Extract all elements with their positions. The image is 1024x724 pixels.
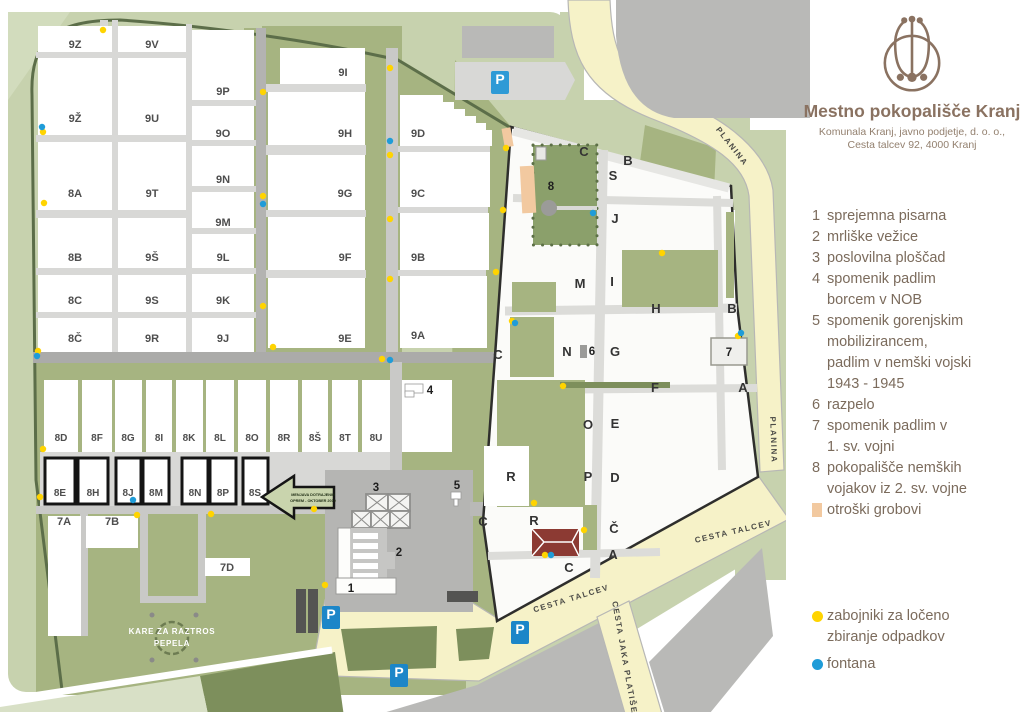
waste-container-dot [500,207,506,213]
fountain-dot [387,138,393,144]
brand-subtitle: Komunala Kranj, javno podjetje, d. o. o.… [806,126,1018,152]
waste-container-dot [208,511,214,517]
waste-container-dot [581,527,587,533]
waste-container-dot [260,193,266,199]
fountain-dot [590,210,596,216]
map-label-oH: H [651,301,660,316]
map-label-z9D: 9D [411,128,425,140]
map-label-z8B: 8B [68,252,82,264]
map-label-z9Sh: 9Š [145,251,158,264]
waste-container-dot [387,276,393,282]
brand-title: Mestno pokopališče Kranj [796,101,1024,122]
map-label-z9N: 9N [216,174,230,186]
brand-subtitle-line2: Cesta talcev 92, 4000 Kranj [806,139,1018,152]
map-label-stPlanina2: PLANINA [768,416,779,463]
map-label-c8G: 8G [121,433,135,444]
map-label-c8I: 8I [155,433,164,444]
map-label-z9B: 9B [411,252,425,264]
map-label-c8Sh: 8Š [309,431,322,444]
waste-container-dot [270,344,276,350]
waste-container-dot [542,552,548,558]
map-label-p1: P [495,71,504,87]
map-label-z7D: 7D [220,562,234,574]
map-label-c8L: 8L [214,433,226,444]
map-label-z9S: 9S [145,295,158,307]
waste-container-dot [134,512,140,518]
waste-container-dot [260,303,266,309]
map-label-c8U: 8U [370,433,383,444]
map-label-z9Zh: 9Ž [69,112,82,125]
waste-container-dot [560,383,566,389]
waste-dot-icon [812,611,823,622]
waste-container-dot [493,269,499,275]
map-label-p2: P [326,606,335,622]
map-label-p3: P [515,621,524,637]
fountain-dot [738,330,744,336]
map-label-z8Ch: 8Č [68,332,82,345]
map-label-z9C: 9C [411,188,425,200]
building-office-1 [336,578,396,594]
legend-panel: Mestno pokopališče Kranj Komunala Kranj,… [806,0,1018,724]
legend-items: 1 sprejemna pisarna 2 mrliške vežice 3 p… [812,206,1018,677]
legend-item-fountain: fontana [812,654,1018,677]
map-label-b8H: 8H [87,488,100,499]
map-label-kare1: KARE ZA RAZTROS [129,627,216,636]
map-label-n3: 3 [373,482,379,494]
map-label-z9G: 9G [338,188,353,200]
map-label-n1: 1 [348,583,355,595]
map-label-kare2: PEPELA [154,639,190,648]
map-label-n6: 6 [589,346,595,358]
waste-container-dot [387,65,393,71]
map-label-oB1: B [623,153,632,168]
fountain-dot [387,357,393,363]
main-road [33,352,497,363]
waste-container-dot [37,494,43,500]
map-label-z9K: 9K [216,295,230,307]
map-label-z9F: 9F [339,252,352,264]
map-label-oR2: R [529,513,539,528]
map-label-oD: D [610,470,619,485]
waste-container-dot [260,89,266,95]
map-label-oR1: R [506,469,516,484]
waste-container-dot [531,500,537,506]
map-label-oE: E [611,416,620,431]
map-label-c8D: 8D [55,433,68,444]
map-label-oS: S [609,168,618,183]
map-label-oC1: C [579,144,589,159]
map-label-z9L: 9L [217,252,230,264]
waste-container-dot [322,582,328,588]
map-label-b8S: 8S [249,488,262,499]
legend-item-1: 1 sprejemna pisarna [812,206,1018,227]
map-label-oM: M [575,276,586,291]
waste-container-dot [311,506,317,512]
map-label-z9H: 9H [338,128,352,140]
map-label-z7B: 7B [105,516,119,528]
map-label-c8O: 8O [245,433,259,444]
legend-spacer [812,524,1018,606]
cemetery-map: 9Z9V9Ž9U8A9T8B9Š8C9S8Č9R9P9O9N9M9L9K9J9I… [0,0,810,724]
waste-container-dot [659,250,665,256]
map-label-oJ: J [611,211,618,226]
legend-item-3: 3 poslovilna ploščad [812,248,1018,269]
map-label-z7A: 7A [57,516,71,528]
legend-item-5: 5 spomenik gorenjskim mobilizirancem, pa… [812,311,1018,395]
fountain-dot [548,552,554,558]
map-label-oC2: C [493,347,503,362]
map-label-z9A: 9A [411,330,425,342]
map-label-oO: O [583,417,593,432]
map-label-z9U: 9U [145,113,159,125]
map-label-z9R: 9R [145,333,159,345]
map-label-b8J: 8J [122,488,133,499]
map-label-z9V: 9V [145,39,159,51]
map-label-c8K: 8K [183,433,197,444]
waste-container-dot [387,216,393,222]
map-label-z9I: 9I [338,67,347,79]
map-label-z8A: 8A [68,188,82,200]
waste-container-dot [387,152,393,158]
map-label-oC3: C [564,560,574,575]
map-label-z9M: 9M [215,217,230,229]
map-label-p4: P [394,664,403,680]
map-label-b8M: 8M [149,488,163,499]
map-label-oI: I [610,274,614,289]
map-label-oCh: Č [609,521,619,536]
map-label-arrow1: MENJAVA DOTRAJENIH [291,493,335,497]
fountain-dot [512,320,518,326]
legend-item-7: 7 spomenik padlim v 1. sv. vojni [812,416,1018,458]
map-label-oF: F [651,380,659,395]
brand-logo [806,10,1018,103]
waste-container-dot [100,27,106,33]
fountain-dot [39,124,45,130]
map-label-z9T: 9T [146,188,159,200]
legend-item-8: 8 pokopališče nemških vojakov iz 2. sv. … [812,458,1018,500]
map-label-b8E: 8E [54,488,67,499]
map-label-oN: N [562,344,571,359]
map-label-z8C: 8C [68,295,82,307]
map-label-n4: 4 [427,385,434,397]
map-label-n2: 2 [396,547,402,559]
map-label-b8N: 8N [189,488,202,499]
waste-container-dot [41,200,47,206]
fountain-dot [34,353,40,359]
children-graves-swatch [812,503,822,517]
legend-item-children-graves: otroški grobovi [812,500,1018,524]
map-label-c8R: 8R [278,433,292,444]
map-label-n7: 7 [726,347,732,359]
fountain-dot [260,201,266,207]
fountain-dot-icon [812,659,823,670]
red-building [532,529,579,556]
cemetery-map-page: 9Z9V9Ž9U8A9T8B9Š8C9S8Č9R9P9O9N9M9L9K9J9I… [0,0,1024,724]
legend-item-4: 4 spomenik padlim borcem v NOB [812,269,1018,311]
map-label-oA2: A [608,547,618,562]
map-label-z9P: 9P [216,86,229,98]
brand-subtitle-line1: Komunala Kranj, javno podjetje, d. o. o.… [806,126,1018,139]
map-label-z9J: 9J [217,333,229,345]
map-label-oA1: A [738,380,748,395]
legend-item-waste: zabojniki za ločeno zbiranje odpadkov [812,606,1018,648]
map-label-oP: P [584,469,593,484]
map-label-oG: G [610,344,620,359]
legend-item-6: 6 razpelo [812,395,1018,416]
map-label-n8: 8 [548,181,555,193]
map-label-c8T: 8T [339,433,351,444]
building-mortuary-2 [338,528,395,584]
legend-item-2: 2 mrliške vežice [812,227,1018,248]
waste-container-dot [40,446,46,452]
waste-container-dot [379,356,385,362]
map-label-b8P: 8P [217,488,230,499]
map-label-oC4: C [478,514,488,529]
map-label-z9E: 9E [338,333,351,345]
map-label-c8F: 8F [91,433,103,444]
waste-container-dot [503,145,509,151]
map-label-z9O: 9O [216,128,231,140]
map-label-n5: 5 [454,480,461,492]
map-label-oB2: B [727,301,736,316]
map-label-z9Z: 9Z [69,39,82,51]
map-label-arrow2: OPREM - OKTOBER 2019 [290,499,336,503]
